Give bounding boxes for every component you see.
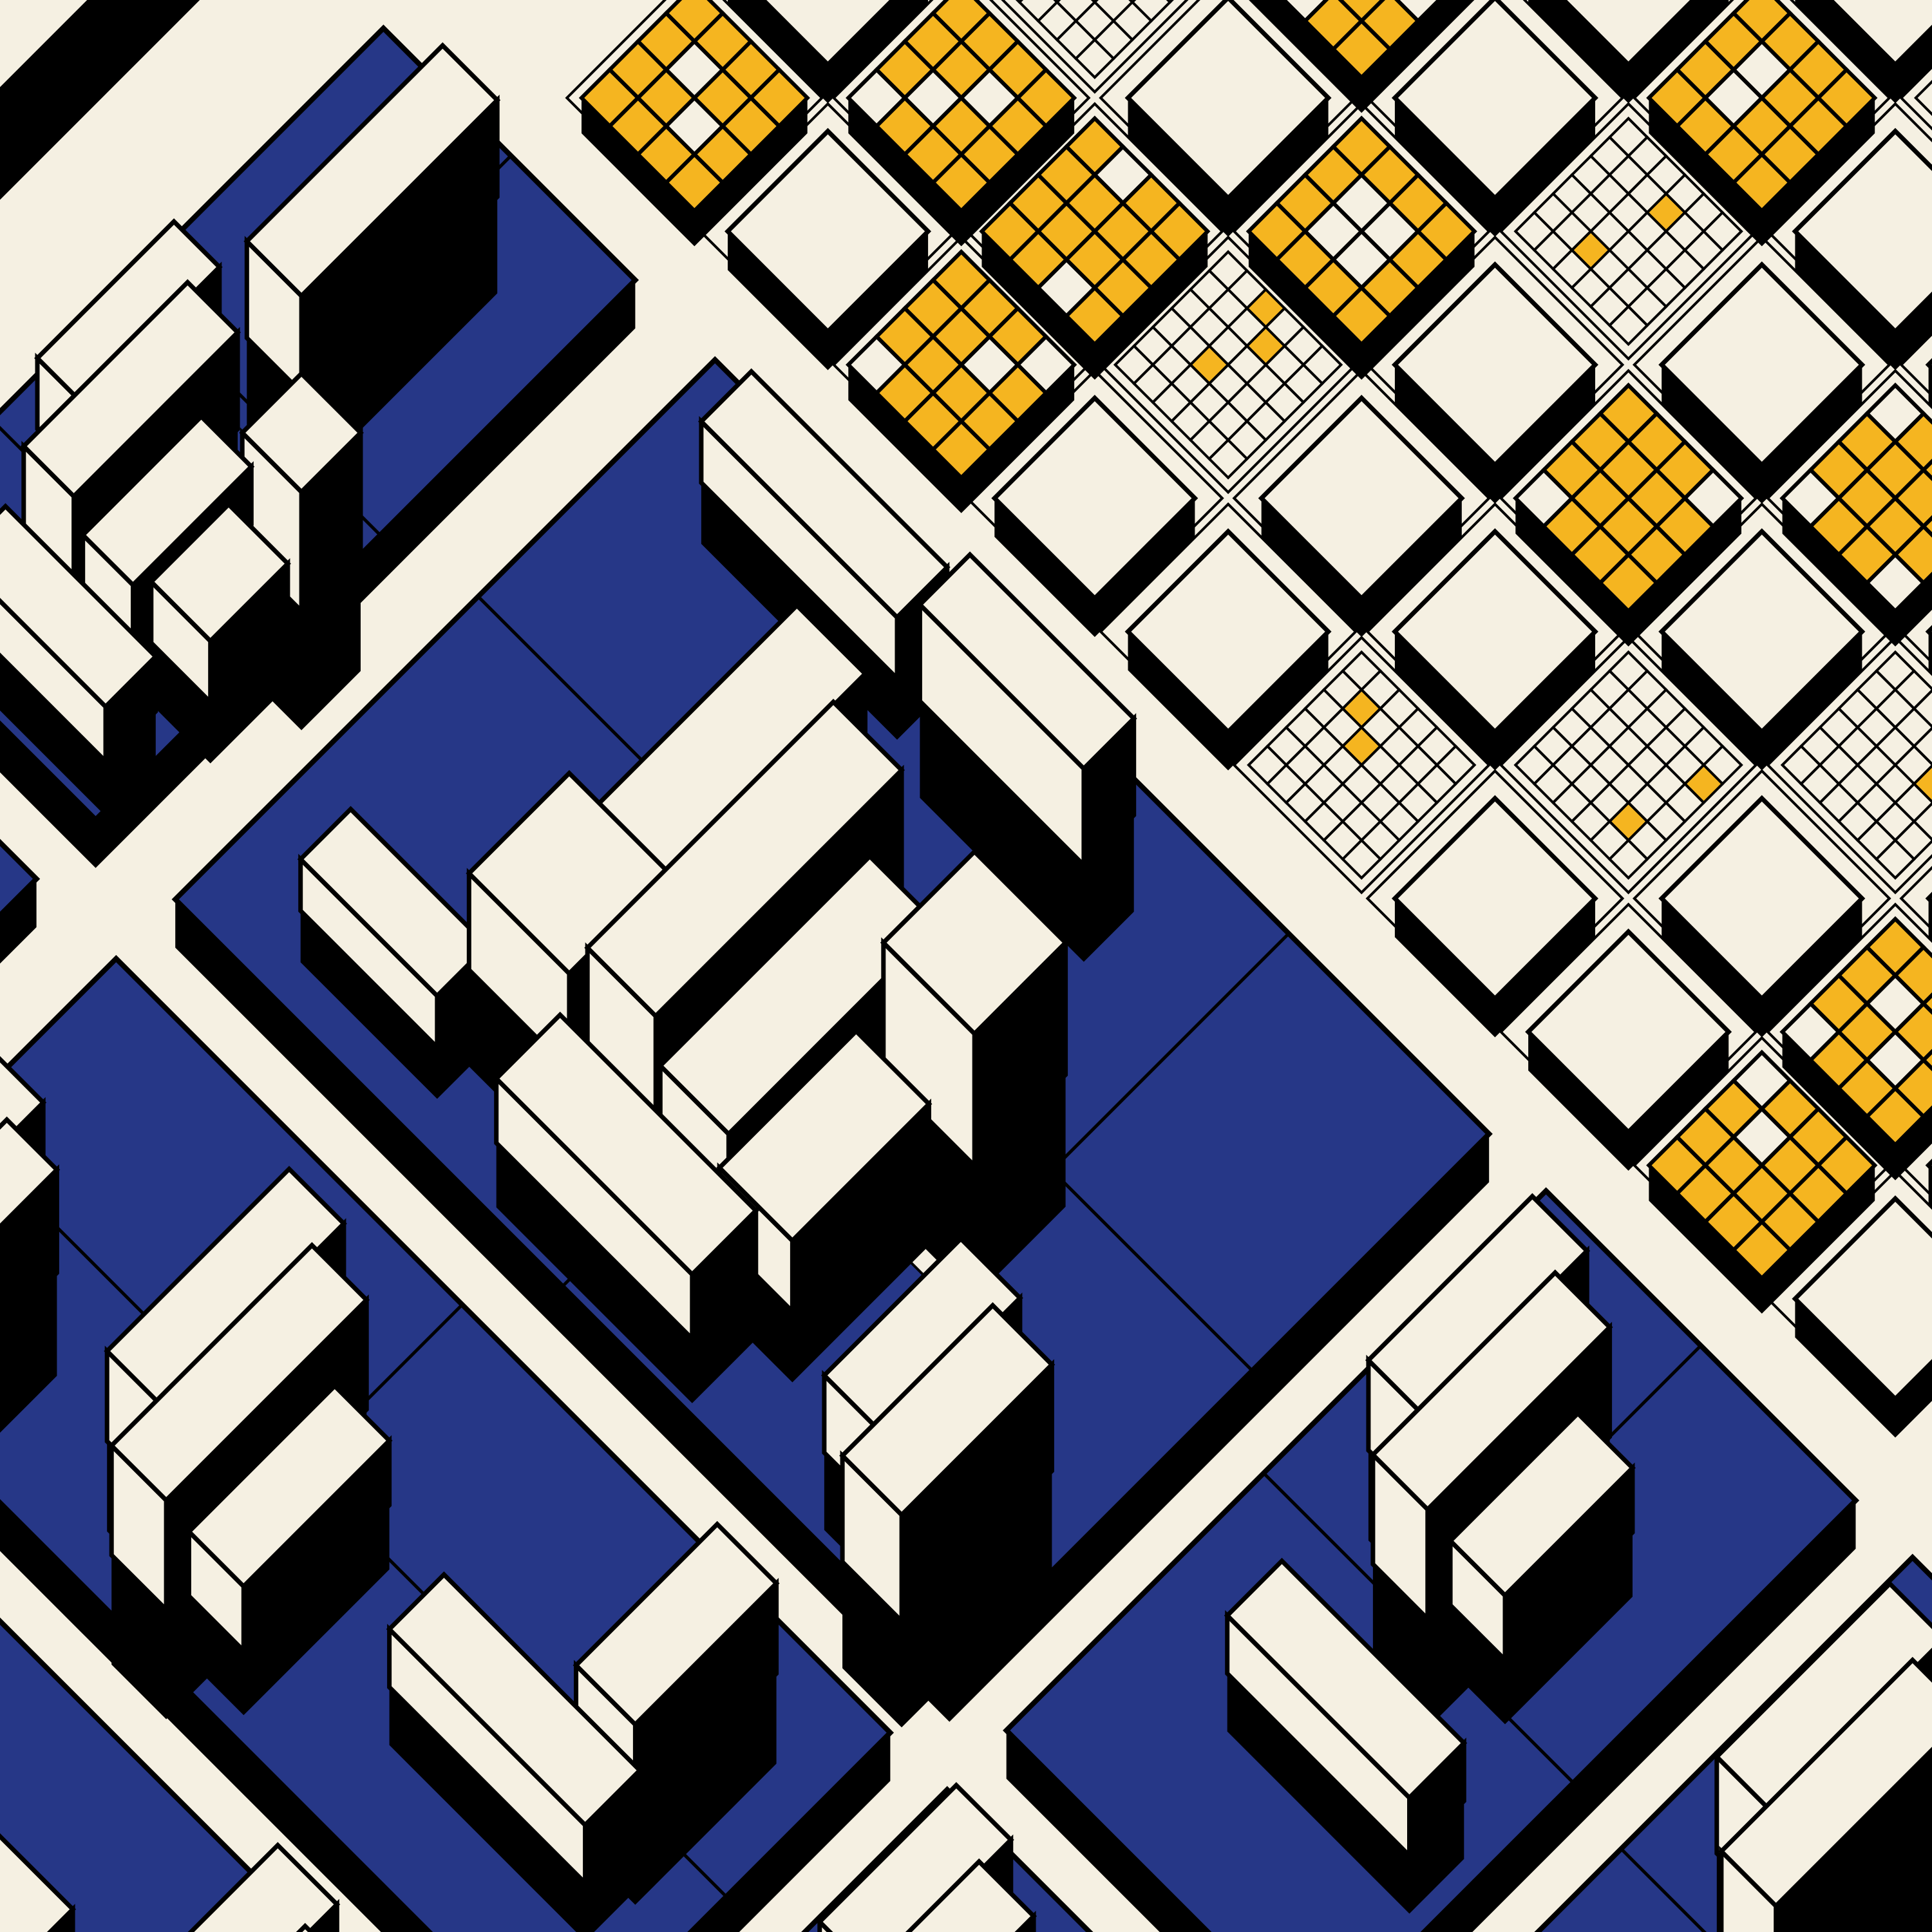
artwork-stage (0, 0, 1932, 1932)
isometric-city-map (0, 0, 1932, 1932)
